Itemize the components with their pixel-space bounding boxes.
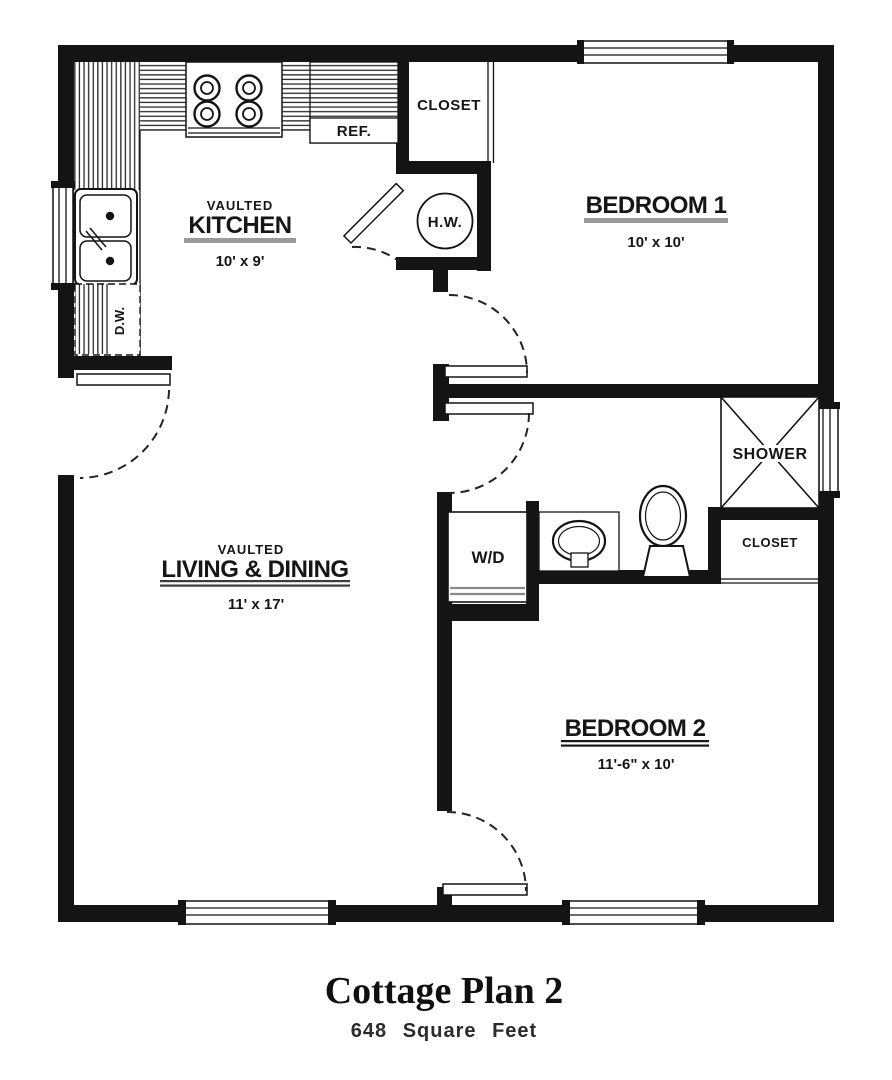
closet-front-line [488, 62, 494, 163]
bedroom1-underline [584, 218, 728, 223]
bath-sink [539, 512, 619, 571]
window-kitchen-west [51, 181, 75, 290]
hw-door-stub [433, 270, 448, 292]
closet-top-label: CLOSET [417, 97, 481, 114]
bedroom2-dims: 11'-6" x 10' [598, 756, 675, 773]
sink-drain [106, 212, 114, 220]
bedroom2-door [443, 812, 527, 895]
kitchen-underline [184, 238, 296, 243]
toilet-tank [643, 546, 690, 577]
kitchen-dims: 10' x 9' [216, 253, 265, 270]
sink-drain [106, 257, 114, 265]
bath-closet-front-line [721, 579, 818, 583]
living-underline [160, 580, 350, 582]
bath-sink-faucet [571, 553, 588, 567]
hw-east-wall [477, 161, 491, 271]
bath-closet-north-wall [708, 507, 818, 520]
refrigerator-label: REF. [337, 123, 372, 140]
wd-east-wall [526, 501, 539, 621]
bedroom1-name: BEDROOM 1 [586, 192, 727, 219]
bedroom2-underline [561, 740, 709, 742]
living-prefix: VAULTED [218, 542, 284, 557]
wall-west-lower [58, 475, 74, 922]
bedroom2-name: BEDROOM 2 [565, 715, 706, 742]
plan-title: Cottage Plan 2 [325, 970, 564, 1012]
wd-south-wall [448, 604, 539, 621]
shower-label: SHOWER [733, 446, 808, 463]
washer-dryer-label: W/D [471, 548, 504, 567]
counter-left-run [73, 62, 140, 190]
water-heater-label: H.W. [428, 214, 463, 231]
closet-south-wall [396, 161, 491, 174]
water-heater: H.W. [418, 194, 473, 249]
dishwasher: D.W. [75, 284, 140, 355]
kitchen-name: KITCHEN [188, 212, 291, 239]
floor-plan-page: REF. D.W. H.W. W/D [0, 0, 892, 1080]
stove [186, 62, 282, 137]
closet-bath-label: CLOSET [742, 535, 798, 550]
window-bedroom1-north [577, 40, 734, 64]
kitchen-sink [75, 189, 137, 285]
floor-plan-drawing: REF. D.W. H.W. W/D [0, 0, 892, 1080]
bedroom1-bath-wall [433, 384, 834, 398]
water-heater-door [344, 184, 403, 262]
wall-south [58, 905, 834, 922]
bedroom2-underline [561, 745, 709, 747]
window-living-south [178, 900, 336, 925]
bedroom1-dims: 10' x 10' [627, 234, 684, 251]
living-dims: 11' x 17' [228, 596, 284, 613]
title-block: Cottage Plan 2 648 Square Feet [325, 970, 564, 1042]
interior-walls [73, 62, 834, 906]
living-underline [160, 585, 350, 587]
washer-dryer: W/D [448, 512, 527, 602]
kitchen-prefix: VAULTED [207, 198, 273, 213]
toilet [640, 486, 690, 577]
dishwasher-label: D.W. [112, 307, 127, 335]
plan-subtitle: 648 Square Feet [351, 1020, 537, 1042]
living-name: LIVING & DINING [161, 556, 348, 583]
front-door [77, 374, 170, 478]
hw-south-wall [396, 257, 491, 270]
kitchen-entry-stub-wall [73, 356, 172, 370]
refrigerator: REF. [310, 62, 398, 143]
shower: SHOWER [721, 397, 819, 508]
window-bedroom2-south [562, 900, 705, 925]
bath-hall-door [445, 403, 533, 493]
bedroom1-door [445, 295, 527, 377]
